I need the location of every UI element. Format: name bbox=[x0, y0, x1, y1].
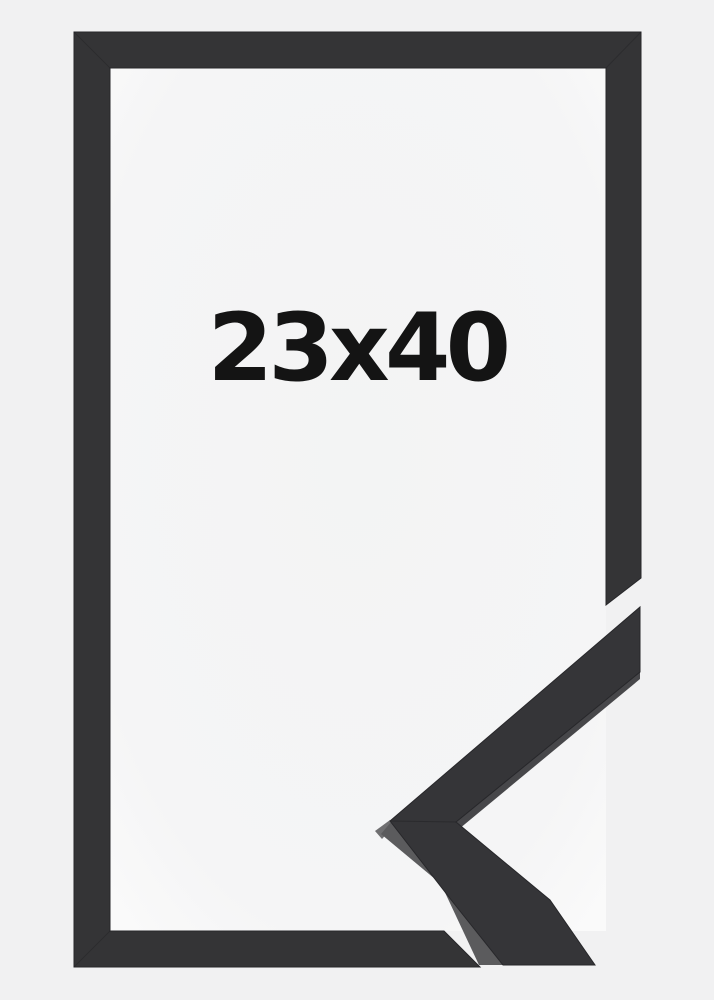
size-label: 23x40 bbox=[0, 302, 714, 396]
frame-illustration bbox=[0, 0, 714, 1000]
frame-interior bbox=[110, 68, 606, 931]
product-image: 23x40 bbox=[0, 0, 714, 1000]
